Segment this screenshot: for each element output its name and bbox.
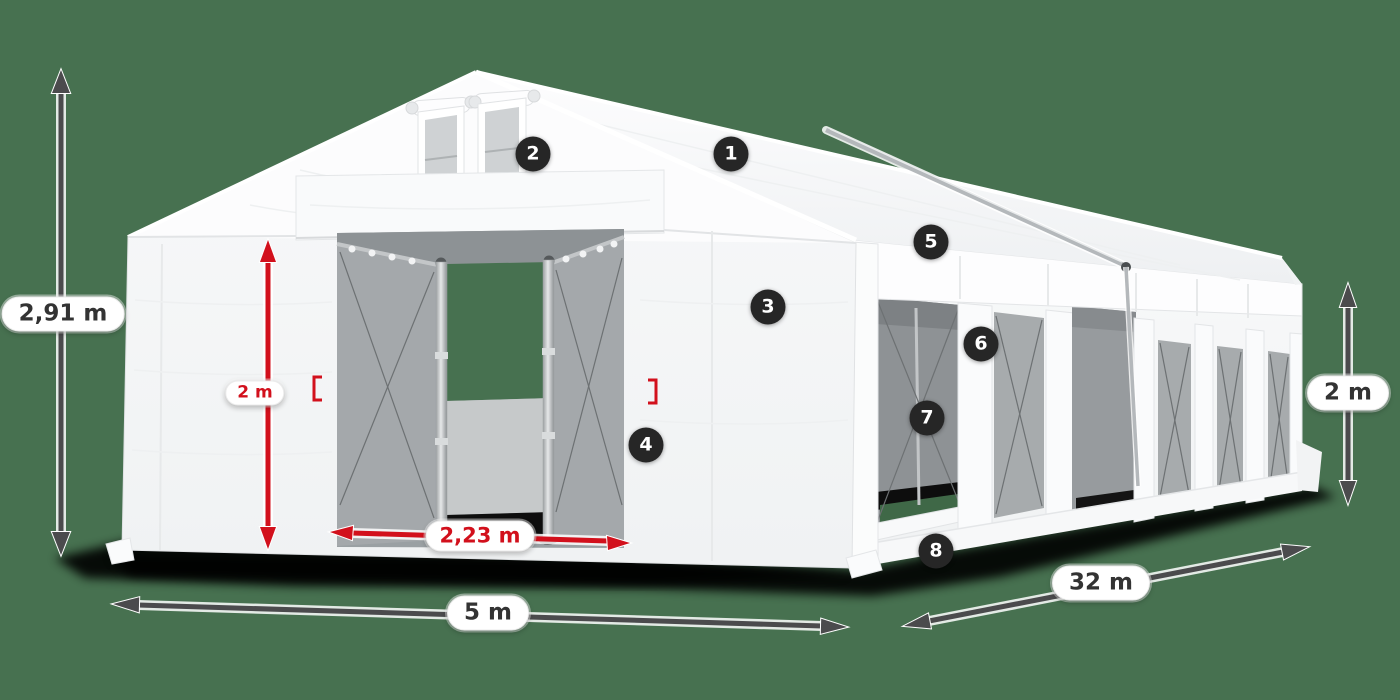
feature-badge-5: 5 bbox=[914, 225, 949, 260]
tent-marquee-diagram: 2,91 m 2 m 2,23 m 5 m 32 m 2 m 1 2 3 4 5… bbox=[0, 0, 1400, 700]
through-view bbox=[446, 262, 552, 401]
tent-illustration bbox=[0, 0, 1400, 700]
side-window-panel-1 bbox=[994, 312, 1044, 518]
dimension-label-door-height: 2 m bbox=[225, 381, 284, 406]
side-window-panel-2 bbox=[1158, 340, 1191, 500]
side-window-panel-4 bbox=[1268, 351, 1290, 487]
feature-badge-7: 7 bbox=[910, 401, 945, 436]
feature-badge-1: 1 bbox=[714, 137, 749, 172]
end-flap bbox=[1296, 440, 1322, 492]
front-opening bbox=[314, 229, 656, 549]
door-leaf-right bbox=[552, 237, 624, 548]
dimension-label-front-width: 5 m bbox=[447, 596, 529, 631]
dimension-label-length: 32 m bbox=[1052, 566, 1150, 601]
feature-badge-3: 3 bbox=[751, 290, 786, 325]
door-leaf-left bbox=[337, 244, 438, 546]
side-post bbox=[1195, 324, 1213, 511]
dimension-label-door-width: 2,23 m bbox=[425, 521, 534, 552]
feature-badge-2: 2 bbox=[516, 137, 551, 172]
dimension-label-side-height: 2 m bbox=[1307, 376, 1389, 411]
side-window-panel-3 bbox=[1217, 346, 1243, 492]
side-post bbox=[1046, 310, 1074, 534]
side-open-doorway-2 bbox=[1072, 306, 1136, 529]
feature-badge-6: 6 bbox=[964, 327, 999, 362]
dimension-label-total-height: 2,91 m bbox=[2, 297, 125, 332]
feature-badge-8: 8 bbox=[919, 534, 954, 569]
feature-badge-4: 4 bbox=[629, 428, 664, 463]
side-post bbox=[1246, 329, 1264, 503]
